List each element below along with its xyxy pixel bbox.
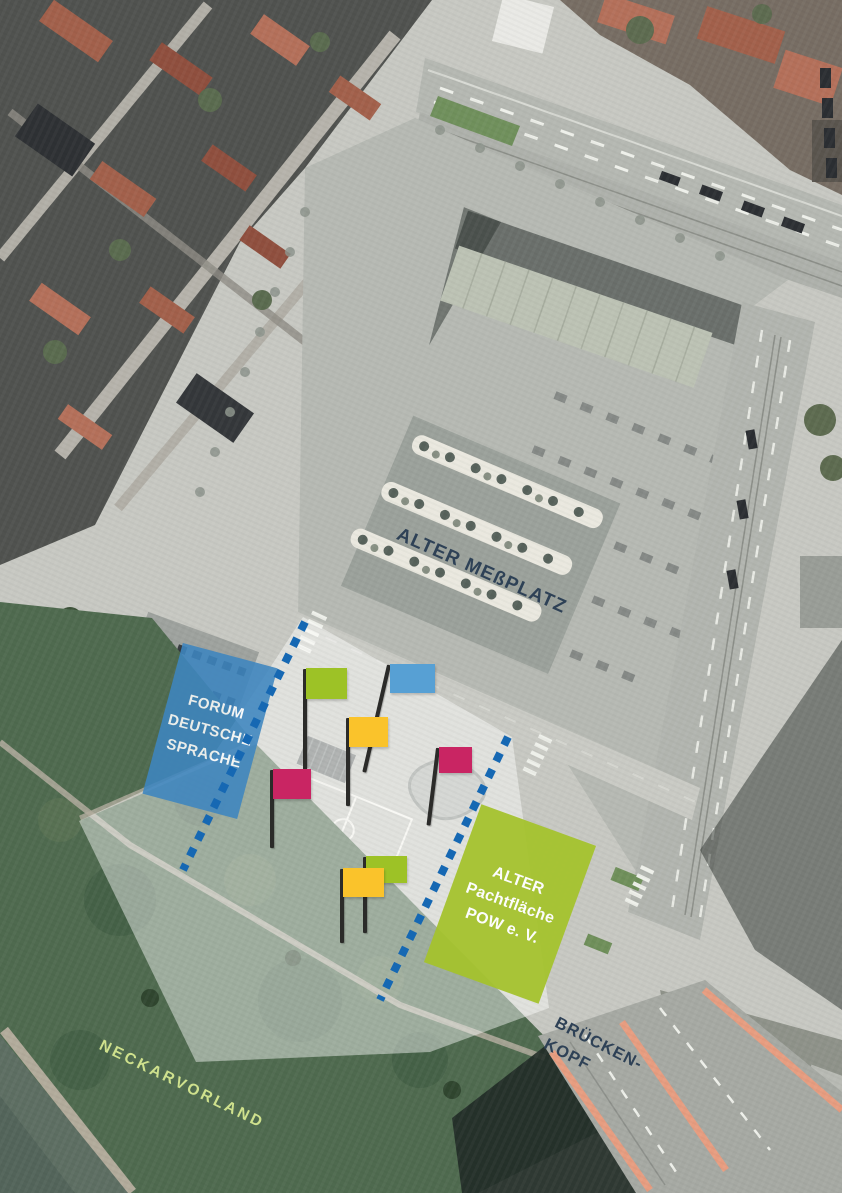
aerial-site-plan: FORUM DEUTSCHE SPRACHE ALTER Pachtfläche… (0, 0, 842, 1193)
flag-banner (390, 664, 435, 693)
flag-banner (273, 769, 311, 799)
flag-banner (439, 747, 472, 773)
boundary-line-west (183, 622, 305, 870)
boundary-lines (0, 0, 842, 1193)
flag-banner (306, 668, 347, 699)
flag-banner (349, 717, 388, 747)
flag-banner (343, 868, 384, 897)
